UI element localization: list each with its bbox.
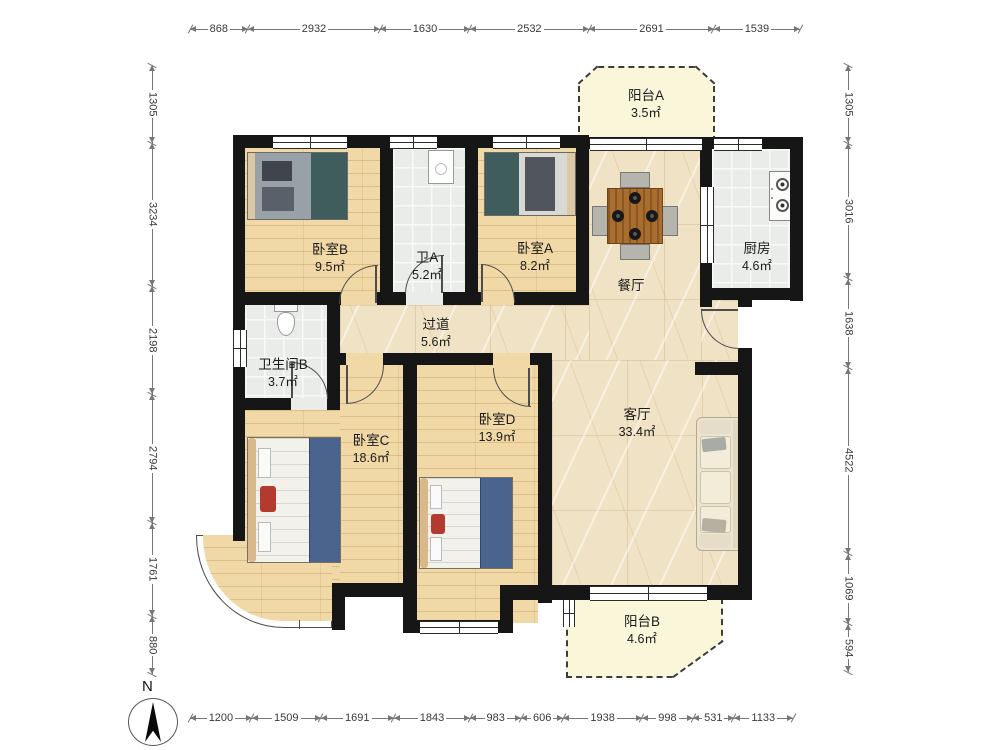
door-opening (346, 353, 383, 365)
dim-segment: 3016 (841, 143, 855, 278)
dim-segment: 2794 (145, 394, 159, 522)
dim-segment: 3234 (145, 143, 159, 286)
room-label-kitchen: 厨房 4.6㎡ (742, 240, 772, 274)
dim-segment: 1761 (145, 523, 159, 617)
dim-segment: 1938 (563, 711, 642, 725)
dim-segment: 2532 (470, 22, 589, 36)
room-label-bedroom-d: 卧室D 13.9㎡ (479, 411, 516, 445)
dim-segment: 1539 (714, 22, 800, 36)
dim-label: 1305 (147, 90, 158, 118)
floor-plan-canvas: 阳台A 3.5㎡ 厨房 4.6㎡ 卧室B 9.5㎡ 卫A 5.2㎡ 卧室A 8.… (0, 0, 1000, 750)
window (273, 136, 347, 149)
dim-segment: 1133 (734, 711, 793, 725)
sofa-armrest (699, 420, 731, 434)
dim-segment: 1305 (145, 65, 159, 143)
bay-window-mullion (299, 620, 300, 629)
bed-red-pillow (260, 486, 276, 512)
toilet-bowl (277, 312, 295, 336)
dim-segment: 606 (521, 711, 563, 725)
dim-label: 2794 (147, 444, 158, 472)
dim-label: 606 (531, 713, 553, 724)
bed-pillow (262, 161, 292, 181)
wall (576, 148, 589, 305)
bed-duvet (309, 438, 340, 562)
toilet (274, 302, 298, 338)
door-opening (291, 398, 327, 410)
sofa-armrest (699, 534, 731, 548)
bed-headboard (420, 478, 428, 568)
dim-segment: 4522 (841, 368, 855, 554)
bed-pillow (430, 485, 442, 509)
sofa (696, 417, 744, 551)
dim-segment: 1509 (252, 711, 321, 725)
wall (790, 137, 803, 301)
dimension-ruler-top: 86829321630253226911539 (190, 22, 800, 36)
dim-segment: 983 (470, 711, 521, 725)
single-bed-bedroom-a (484, 152, 576, 216)
dim-label: 2691 (637, 24, 665, 35)
dim-label: 4522 (843, 446, 854, 474)
room-label-dining: 餐厅 (618, 277, 645, 295)
bed-pillow (430, 537, 442, 561)
room-label-bedroom-c: 卧室C 18.6㎡ (353, 432, 390, 466)
dim-label: 2532 (515, 24, 543, 35)
dim-segment: 1305 (841, 65, 855, 143)
dim-label: 1761 (147, 555, 158, 583)
dining-chair (620, 172, 650, 188)
door-leaf (481, 264, 483, 302)
wall (380, 148, 393, 305)
window (714, 138, 762, 151)
washer-door (435, 163, 447, 175)
bed-pillow (262, 187, 294, 211)
room-label-bedroom-a: 卧室A 8.2㎡ (517, 240, 553, 274)
window (420, 621, 498, 634)
dim-segment: 1630 (380, 22, 469, 36)
door-opening (493, 353, 530, 365)
dim-label: 2198 (147, 326, 158, 354)
bed-duvet (480, 478, 512, 568)
dim-label: 983 (485, 713, 507, 724)
single-bed-bedroom-b (247, 152, 348, 220)
window (590, 138, 702, 151)
wall (695, 362, 752, 375)
plate (646, 210, 658, 222)
dim-segment: 1200 (190, 711, 252, 725)
sofa-pillow (701, 437, 726, 452)
dim-label: 1843 (418, 713, 446, 724)
sofa-cushion (700, 471, 731, 504)
burner (776, 178, 789, 191)
room-label-bath-a: 卫A 5.2㎡ (412, 249, 442, 283)
plate (629, 192, 641, 204)
dim-label: 880 (147, 634, 158, 656)
dim-label: 1539 (743, 24, 771, 35)
wall (327, 300, 340, 410)
dining-table-set (592, 172, 678, 260)
dim-segment: 880 (145, 616, 159, 674)
wall (332, 583, 345, 630)
dim-label: 998 (656, 713, 678, 724)
bed-red-pillow (431, 514, 445, 534)
room-label-hallway: 过道 5.6㎡ (421, 316, 451, 350)
dim-label: 1630 (411, 24, 439, 35)
dim-label: 1509 (272, 713, 300, 724)
bed-headboard (248, 438, 256, 562)
dim-segment: 868 (190, 22, 248, 36)
dim-label: 3016 (843, 197, 854, 225)
stove-knob (771, 197, 773, 199)
stove-knob (771, 188, 773, 190)
double-bed-bedroom-d (419, 477, 513, 569)
bed-pillow (525, 157, 555, 211)
dim-label: 1691 (343, 713, 371, 724)
washing-machine (428, 150, 454, 184)
wall (233, 398, 291, 410)
double-bed-bedroom-c (247, 437, 341, 563)
bed-headboard (567, 153, 575, 215)
dim-segment: 2932 (248, 22, 381, 36)
north-label: N (142, 678, 153, 695)
compass: N (128, 678, 182, 750)
window (233, 330, 247, 367)
window (390, 136, 437, 149)
room-label-bath-b: 卫生间B 3.7㎡ (258, 356, 308, 390)
entry-door-opening (738, 307, 752, 348)
dim-label: 1200 (207, 713, 235, 724)
burner (776, 199, 789, 212)
dining-chair (662, 206, 678, 236)
dimension-ruler-left: 13053234219827941761880 (145, 65, 159, 674)
dim-segment: 2691 (589, 22, 714, 36)
bed-duvet (311, 153, 347, 219)
door-leaf (528, 368, 530, 406)
dim-label: 3234 (147, 200, 158, 228)
dim-label: 531 (702, 713, 724, 724)
dimension-ruler-bottom: 120015091691184398360619389985311133 (190, 711, 793, 725)
dim-label: 594 (843, 637, 854, 659)
bed-headboard (248, 153, 255, 219)
dim-label: 1305 (843, 90, 854, 118)
bed-duvet (485, 153, 519, 215)
room-label-bedroom-b: 卧室B 9.5㎡ (312, 241, 348, 275)
dim-segment: 998 (642, 711, 693, 725)
dim-segment: 2198 (145, 286, 159, 394)
bed-pillow (258, 522, 271, 552)
wall (465, 148, 478, 305)
kitchen-sliding-door (700, 187, 714, 263)
dim-label: 1938 (588, 713, 616, 724)
dim-label: 868 (208, 24, 230, 35)
door-leaf (701, 309, 738, 311)
door-leaf (346, 365, 348, 403)
dim-segment: 594 (841, 624, 855, 672)
dim-label: 2932 (300, 24, 328, 35)
dim-segment: 1069 (841, 554, 855, 624)
door-leaf (375, 265, 377, 303)
dim-segment: 1638 (841, 279, 855, 368)
room-label-balcony-b: 阳台B 4.6㎡ (624, 613, 660, 647)
dining-chair (620, 244, 650, 260)
room-label-balcony-a: 阳台A 3.5㎡ (628, 87, 664, 121)
dim-label: 1069 (843, 574, 854, 602)
dim-label: 1133 (749, 713, 777, 724)
wall (500, 585, 513, 633)
bed-pillow (258, 448, 271, 478)
sofa-pillow (701, 518, 726, 533)
plate (629, 228, 641, 240)
room-label-living: 客厅 33.4㎡ (619, 406, 656, 440)
window (563, 600, 575, 627)
dim-segment: 531 (693, 711, 733, 725)
window (590, 586, 707, 601)
dim-label: 1638 (843, 309, 854, 337)
dim-segment: 1843 (394, 711, 471, 725)
dimension-ruler-right: 13053016163845221069594 (841, 65, 855, 672)
wall (538, 358, 552, 603)
window (493, 136, 560, 149)
dining-chair (592, 206, 608, 236)
dim-segment: 1691 (321, 711, 394, 725)
plate (612, 210, 624, 222)
